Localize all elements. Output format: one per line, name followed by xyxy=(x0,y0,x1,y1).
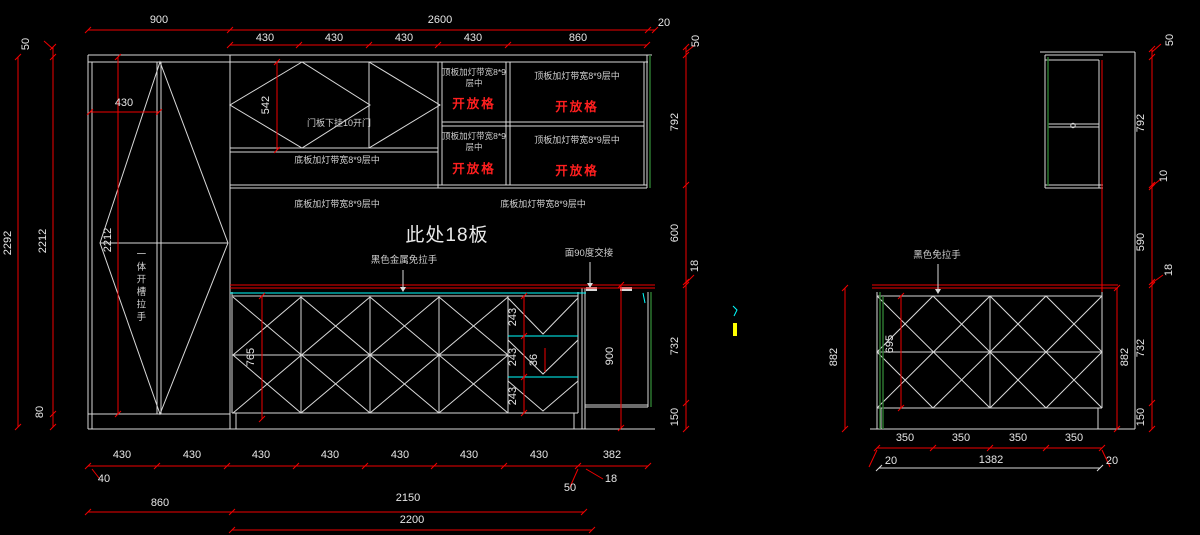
dim-b430: 430 xyxy=(113,449,131,461)
dim-765: 765 xyxy=(245,348,257,366)
dim-r150: 150 xyxy=(1135,408,1147,426)
dim-2292: 2292 xyxy=(2,231,14,255)
dim-20-left: 20 xyxy=(885,455,897,467)
dim-2600-top: 2600 xyxy=(428,14,452,26)
dim-20-top: 20 xyxy=(658,17,670,29)
dim-r18: 18 xyxy=(1163,264,1175,276)
dim-243: 243 xyxy=(507,308,519,326)
dim-50-right: 50 xyxy=(690,35,702,47)
dim-882-right: 882 xyxy=(1119,348,1131,366)
dimension-text: 900 2600 20 430 430 430 430 860 50 2292 … xyxy=(2,14,1176,526)
note-bottom-light-1: 底板加灯带宽8*9层中 xyxy=(267,199,407,211)
dim-r732: 732 xyxy=(1135,339,1147,357)
dim-350: 350 xyxy=(952,432,970,444)
dim-b430: 430 xyxy=(460,449,478,461)
dim-r792: 792 xyxy=(1135,114,1147,132)
note-open-cell11: 开放格 xyxy=(441,93,507,112)
dim-b430: 430 xyxy=(530,449,548,461)
dim-860: 860 xyxy=(151,497,169,509)
dim-2212-inner: 2212 xyxy=(102,228,114,252)
dim-80: 80 xyxy=(34,406,46,418)
dim-50-bottom: 50 xyxy=(564,482,576,494)
dim-seg: 430 xyxy=(325,32,343,44)
dim-150: 150 xyxy=(669,408,681,426)
dim-seg: 430 xyxy=(395,32,413,44)
dim-40: 40 xyxy=(98,473,110,485)
dim-r10: 10 xyxy=(1158,170,1170,182)
dim-36: 36 xyxy=(528,354,540,366)
note-open-cell12: 开放格 xyxy=(511,96,643,115)
dim-243: 243 xyxy=(507,348,519,366)
dim-600: 600 xyxy=(669,224,681,242)
dim-18-bottom: 18 xyxy=(605,473,617,485)
note-top-light-cell12: 顶板加灯带宽8*9层中 xyxy=(511,71,643,83)
note-top-light-cell21: 顶板加灯带宽8*9层中 xyxy=(441,131,507,153)
dim-350: 350 xyxy=(1009,432,1027,444)
dim-350: 350 xyxy=(896,432,914,444)
note-top-light-cell11: 顶板加灯带宽8*9层中 xyxy=(441,67,507,89)
dim-b430: 430 xyxy=(252,449,270,461)
note-joint-90: 面90度交接 xyxy=(538,248,640,260)
note-metal-handle: 黑色金属免拉手 xyxy=(343,255,465,267)
dim-r50: 50 xyxy=(1164,34,1176,46)
green-panel-lines xyxy=(650,55,1048,429)
dim-18-right: 18 xyxy=(689,260,701,272)
dim-seg: 860 xyxy=(569,32,587,44)
dim-r590: 590 xyxy=(1135,233,1147,251)
right-elevation-geometry xyxy=(870,52,1135,429)
dim-382: 382 xyxy=(603,449,621,461)
dim-20-right: 20 xyxy=(1106,455,1118,467)
yellow-mark xyxy=(733,323,737,336)
dim-732: 732 xyxy=(669,337,681,355)
dim-792: 792 xyxy=(669,113,681,131)
dim-1382: 1382 xyxy=(979,454,1003,466)
dim-2212-left: 2212 xyxy=(37,229,49,253)
dim-seg: 430 xyxy=(256,32,274,44)
dim-b430: 430 xyxy=(183,449,201,461)
note-black-handle: 黑色免拉手 xyxy=(886,250,988,262)
note-bottom-light-2: 底板加灯带宽8*9层中 xyxy=(473,199,613,211)
note-top-light-cell22: 顶板加灯带宽8*9层中 xyxy=(511,135,643,147)
dim-900-bay: 900 xyxy=(604,347,616,365)
note-door: 门板下挂10开门 xyxy=(288,118,390,130)
dim-882-left: 882 xyxy=(828,348,840,366)
note-open-cell21: 开放格 xyxy=(441,158,507,177)
note-board18: 此处18板 xyxy=(377,224,517,249)
dim-350: 350 xyxy=(1065,432,1083,444)
note-slot-handle: 一体开槽拉手 xyxy=(133,240,145,332)
dim-seg: 430 xyxy=(464,32,482,44)
cad-canvas: 900 2600 20 430 430 430 430 860 50 2292 … xyxy=(0,0,1200,535)
dim-b430: 430 xyxy=(391,449,409,461)
dim-695: 695 xyxy=(884,335,896,353)
dim-50-topleft: 50 xyxy=(20,38,32,50)
dim-2200: 2200 xyxy=(400,514,424,526)
dim-b430: 430 xyxy=(321,449,339,461)
dim-900-top: 900 xyxy=(150,14,168,26)
dim-2150: 2150 xyxy=(396,492,420,504)
dim-243: 243 xyxy=(507,387,519,405)
note-bottom-light-strip: 底板加灯带宽8*9层中 xyxy=(267,155,407,167)
dim-542: 542 xyxy=(260,96,272,114)
dim-430-inner: 430 xyxy=(115,97,133,109)
note-open-cell22: 开放格 xyxy=(511,160,643,179)
